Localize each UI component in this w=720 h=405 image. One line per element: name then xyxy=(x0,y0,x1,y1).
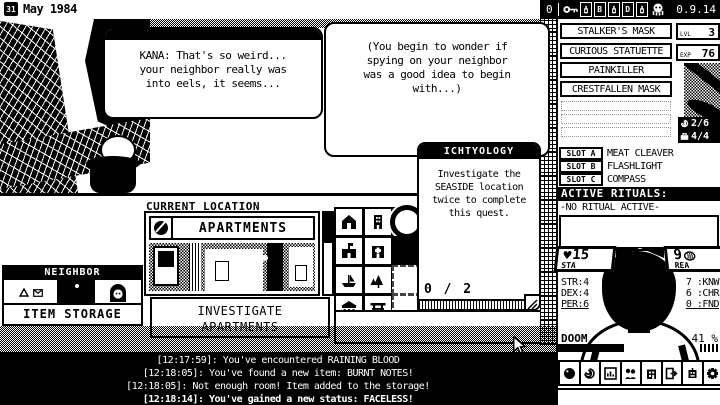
letter-icon xyxy=(33,289,43,297)
date-label: May 1984 xyxy=(23,2,77,16)
mouse-cursor xyxy=(512,336,527,358)
location-panel: APARTMENTS xyxy=(144,211,320,296)
inventory-item[interactable]: STALKER'S MASK xyxy=(560,23,672,39)
event-log: [12:17:59]: You've encountered RAINING B… xyxy=(0,352,556,405)
stats-menu-button[interactable] xyxy=(599,360,622,386)
slot-b-item[interactable]: FLASHLIGHT xyxy=(607,160,662,173)
ally-status-icons xyxy=(4,280,59,305)
city-menu-button[interactable] xyxy=(640,360,663,386)
level-label: LVL xyxy=(680,31,691,38)
spells-menu-button[interactable] xyxy=(579,360,602,386)
coffee-cup xyxy=(90,164,136,193)
character-panel: STALKER'S MASK CURIOUS STATUETTE PAINKIL… xyxy=(556,19,720,405)
exp-box: EXP 76 xyxy=(676,44,720,61)
map-cell-tower[interactable] xyxy=(363,207,393,237)
slot-c-chip: SLOT C xyxy=(559,173,603,186)
spells-counter: 2/6 xyxy=(678,117,720,130)
log-line: [12:18:05]: Not enough room! Item added … xyxy=(0,380,556,393)
building-icon xyxy=(645,367,658,380)
slot-a-item[interactable]: MEAT CLEAVER xyxy=(607,147,673,160)
inventory-item[interactable]: PAINKILLER xyxy=(560,62,672,78)
slot-a-chip: SLOT A xyxy=(559,147,603,160)
quest-line: Investigate the xyxy=(419,168,539,181)
stat-str: STR:4 xyxy=(561,277,589,288)
stat-knw: 7 :KNW xyxy=(674,277,719,288)
panel-footer xyxy=(558,388,720,405)
stamina-banner: ♥15 STA xyxy=(554,246,617,272)
investigate-line: INVESTIGATE xyxy=(152,303,328,319)
map-cell-harbor[interactable] xyxy=(334,265,364,295)
top-bar-status: 0 B D 0.9.14 xyxy=(540,0,720,19)
slot-b-chip: SLOT B xyxy=(559,160,603,173)
active-rituals-header: ACTIVE RITUALS: xyxy=(558,187,720,201)
ground-texture xyxy=(0,326,556,352)
reason-label: REA xyxy=(674,262,720,270)
potion-tile-icon xyxy=(580,2,592,17)
location-title-bar: APARTMENTS xyxy=(149,216,315,240)
scrollbar-thumb[interactable] xyxy=(324,213,332,243)
dialogue-line: KANA: That's so weird... xyxy=(105,49,321,63)
allies-menu-button[interactable] xyxy=(620,360,643,386)
slot-c-item[interactable]: COMPASS xyxy=(607,173,646,186)
door-arrow-icon xyxy=(665,367,678,380)
exp-value: 76 xyxy=(702,47,715,60)
dialogue-bubble-inner: (You begin to wonder if spying on your n… xyxy=(324,22,550,157)
quest-line: this quest. xyxy=(419,207,539,220)
ally-slot-dark xyxy=(59,280,95,305)
version-label: 0.9.14 xyxy=(676,3,716,16)
dialogue-line: with...) xyxy=(326,82,548,96)
inventory-empty-slot xyxy=(561,114,671,124)
log-line-status: [12:18:14]: You've gained a new status: … xyxy=(0,393,556,405)
tile-b-icon: B xyxy=(594,2,606,17)
top-bar: 31 May 1984 0 B D 0.9.14 xyxy=(0,0,720,19)
doom-bar-end xyxy=(700,344,720,352)
settings-menu-button[interactable] xyxy=(702,360,720,386)
rituals-status: -NO RITUAL ACTIVE- xyxy=(560,202,659,213)
map-cell-school[interactable] xyxy=(334,236,364,266)
quest-title: ICHTYOLOGY xyxy=(419,144,539,159)
inventory-item[interactable]: CURIOUS STATUETTE xyxy=(560,43,672,59)
inventory-item[interactable]: CRESTFALLEN MASK xyxy=(560,81,672,97)
quest-popup: ICHTYOLOGY Investigate the SEASIDE locat… xyxy=(417,142,541,311)
counter-value: 0 xyxy=(546,3,553,16)
tile-d-icon: D xyxy=(622,2,634,17)
map-cell-forest[interactable] xyxy=(363,265,393,295)
chart-icon xyxy=(604,367,617,380)
stat-per: PER:6 xyxy=(561,299,589,310)
inventory-empty-slot xyxy=(561,101,671,111)
octopus-icon xyxy=(651,3,665,16)
dialogue-line: was a good idea to begin xyxy=(326,68,548,82)
inventory-empty-slot xyxy=(561,127,671,137)
quest-scrollbar[interactable] xyxy=(419,299,524,309)
log-line: [12:17:59]: You've encountered RAINING B… xyxy=(0,354,556,367)
location-picture xyxy=(149,243,315,291)
location-name: APARTMENTS xyxy=(173,221,313,236)
spiral-icon xyxy=(583,367,596,380)
calendar-icon: 31 xyxy=(4,2,18,16)
key-icon xyxy=(563,5,578,14)
level-box: LVL 3 xyxy=(676,23,720,40)
items-counter: 4/4 xyxy=(678,130,720,143)
resize-corner[interactable] xyxy=(524,294,539,309)
potion-tile-icon xyxy=(636,2,648,17)
stat-dex: DEX:4 xyxy=(561,288,589,299)
building-menu-button[interactable] xyxy=(681,360,704,386)
briefcase-icon xyxy=(680,132,689,141)
bubble-header-bar xyxy=(105,29,321,40)
gear-icon xyxy=(706,367,719,380)
map-cell-hospital[interactable] xyxy=(363,236,393,266)
reason-banner: 9 REA xyxy=(664,246,720,272)
menu-toolbar xyxy=(558,360,720,386)
divider xyxy=(558,3,559,16)
location-marker-icon xyxy=(151,218,173,238)
item-storage-button[interactable]: ITEM STORAGE xyxy=(2,303,143,326)
doom-bar-fill xyxy=(558,344,624,352)
triangle-icon xyxy=(19,288,29,297)
spiral-icon xyxy=(680,119,689,128)
dialogue-line: into eels, it seems... xyxy=(105,77,321,91)
stamina-label: STA xyxy=(561,262,612,270)
robot-icon xyxy=(686,367,699,380)
stat-chr: 6 :CHR xyxy=(674,288,719,299)
location-scrollbar[interactable] xyxy=(322,211,334,296)
exp-label: EXP xyxy=(680,52,691,59)
map-cell-house[interactable] xyxy=(334,207,364,237)
dialogue-line: your neighbor really was xyxy=(105,63,321,77)
dialogue-bubble-kana: KANA: That's so weird... your neighbor r… xyxy=(103,27,323,119)
exit-menu-button[interactable] xyxy=(661,360,684,386)
dialogue-line: spying on your neighbor xyxy=(326,54,548,68)
dialogue-line: (You begin to wonder if xyxy=(326,40,548,54)
quest-line: twice to complete xyxy=(419,194,539,207)
stat-fnd: 0 :FND xyxy=(674,299,719,310)
potion-tile-icon xyxy=(608,2,620,17)
people-icon xyxy=(624,367,637,380)
log-line: [12:18:05]: You've found a new item: BUR… xyxy=(0,367,556,380)
brain-icon xyxy=(684,251,697,261)
level-value: 3 xyxy=(708,26,715,39)
orb-menu-button[interactable] xyxy=(558,360,581,386)
ally-portrait xyxy=(95,280,141,305)
game-screen: 31 May 1984 0 B D 0.9.14 xyxy=(0,0,720,405)
quest-line: SEASIDE location xyxy=(419,181,539,194)
quest-progress: 0 / 2 xyxy=(424,282,473,297)
ally-title: NEIGHBOR xyxy=(2,265,143,280)
